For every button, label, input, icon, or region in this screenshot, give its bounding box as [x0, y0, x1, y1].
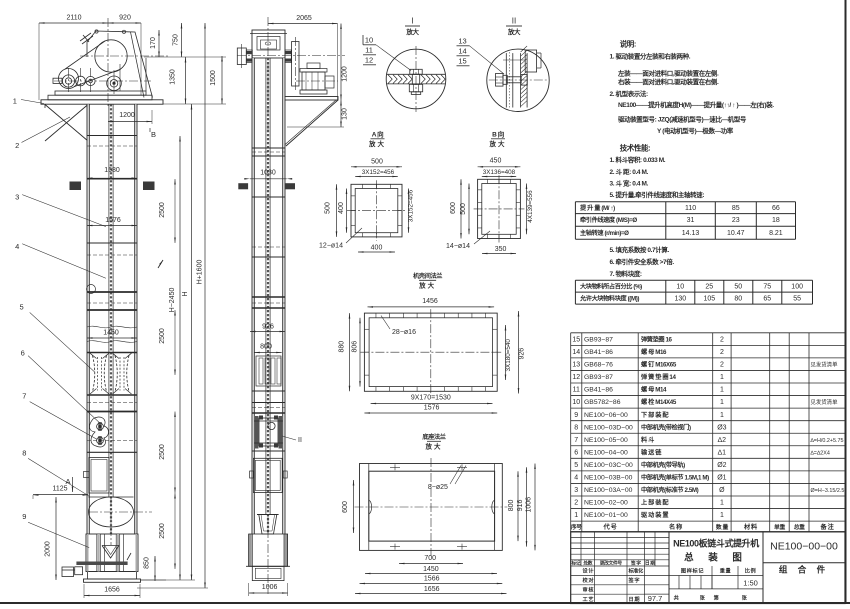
svg-text:4: 4: [574, 475, 578, 482]
svg-text:下 部 装 配: 下 部 装 配: [641, 411, 669, 419]
svg-text:55: 55: [793, 295, 801, 302]
svg-text:∆1: ∆1: [718, 449, 726, 456]
svg-text:螺 钉 M16X65: 螺 钉 M16X65: [641, 361, 677, 369]
svg-text:7: 7: [22, 392, 26, 401]
svg-text:螺 母 M14: 螺 母 M14: [641, 386, 667, 394]
svg-text:1450: 1450: [103, 330, 119, 337]
svg-text:1500: 1500: [210, 70, 217, 86]
svg-text:14: 14: [572, 349, 580, 356]
svg-text:5: 5: [20, 303, 24, 312]
svg-text:66: 66: [772, 205, 780, 212]
svg-text:中部机壳(带导轨): 中部机壳(带导轨): [641, 461, 685, 469]
svg-text:6: 6: [21, 349, 25, 358]
svg-text:审 核: 审 核: [583, 586, 595, 594]
svg-text:NE100板链斗式提升机: NE100板链斗式提升机: [673, 538, 759, 549]
svg-text:1576: 1576: [424, 404, 440, 411]
svg-text:800: 800: [260, 344, 272, 351]
svg-text:主轴转速 (r/min)=Ø: 主轴转速 (r/min)=Ø: [580, 229, 629, 237]
svg-text:驱 动 装 置: 驱 动 装 置: [641, 511, 668, 519]
svg-text:1:50: 1:50: [743, 579, 758, 588]
svg-text:1566: 1566: [424, 575, 440, 582]
svg-text:螺 栓 M14X45: 螺 栓 M14X45: [641, 398, 677, 406]
svg-text:1125: 1125: [52, 486, 67, 493]
svg-text:中部机壳(带检视门): 中部机壳(带检视门): [641, 423, 691, 431]
svg-text:说明:: 说明:: [620, 39, 636, 49]
svg-text:比 例: 比 例: [745, 567, 756, 575]
svg-text:中部机壳(单标节 1.5M,1 M): 中部机壳(单标节 1.5M,1 M): [641, 474, 709, 482]
svg-text:1030: 1030: [260, 170, 276, 177]
svg-text:1200: 1200: [342, 66, 349, 82]
svg-text:校 对: 校 对: [583, 576, 595, 584]
svg-text:H+1600: H+1600: [197, 260, 204, 285]
svg-text:放大: 放大: [507, 27, 521, 36]
svg-text:GB41−86: GB41−86: [584, 387, 613, 394]
svg-text:7. 物料块度:: 7. 物料块度:: [610, 269, 642, 278]
svg-text:NE100−01−00: NE100−01−00: [584, 512, 628, 519]
svg-text:更改文件号: 更改文件号: [600, 560, 623, 567]
svg-text:1: 1: [720, 500, 724, 507]
svg-text:926: 926: [262, 324, 274, 331]
svg-text:放大: 放大: [368, 139, 386, 148]
svg-text:10: 10: [365, 36, 373, 45]
svg-text:3: 3: [15, 193, 19, 202]
svg-text:放大: 放大: [489, 139, 507, 148]
svg-text:1: 1: [720, 387, 724, 394]
svg-text:11: 11: [365, 46, 373, 55]
svg-text:15: 15: [458, 57, 466, 66]
svg-text:12: 12: [572, 374, 580, 381]
svg-text:50: 50: [734, 283, 742, 290]
svg-text:GB5782−86: GB5782−86: [584, 399, 621, 406]
svg-text:上 部 装 配: 上 部 装 配: [641, 499, 669, 507]
svg-text:设 计: 设 计: [583, 567, 595, 575]
svg-text:序号: 序号: [571, 523, 582, 531]
svg-text:允许大块物料块度 ((M)): 允许大块物料块度 ((M)): [579, 294, 639, 302]
svg-text:14: 14: [458, 47, 466, 56]
svg-text:400: 400: [338, 202, 345, 214]
svg-text:400: 400: [371, 245, 383, 252]
svg-text:850: 850: [144, 557, 151, 569]
svg-text:2000: 2000: [45, 541, 52, 557]
svg-text:2500: 2500: [159, 523, 166, 539]
svg-text:8−ø25: 8−ø25: [428, 484, 448, 491]
svg-text:916: 916: [517, 499, 524, 511]
svg-text:100: 100: [791, 283, 803, 290]
svg-text:处数: 处数: [582, 560, 592, 567]
svg-text:代 号: 代 号: [603, 523, 617, 531]
svg-text:80: 80: [734, 295, 742, 302]
svg-text:签 字: 签 字: [630, 560, 641, 567]
svg-text:3X180=540: 3X180=540: [505, 339, 512, 372]
svg-text:NE100−04−00: NE100−04−00: [584, 449, 628, 456]
svg-text:NE100−03B−00: NE100−03B−00: [584, 475, 633, 482]
svg-text:1: 1: [13, 97, 17, 106]
svg-text:85: 85: [732, 205, 740, 212]
svg-text:2110: 2110: [66, 15, 81, 22]
svg-text:3X136=408: 3X136=408: [483, 169, 516, 176]
svg-text:4: 4: [15, 242, 19, 251]
svg-text:10.47: 10.47: [727, 230, 745, 237]
svg-text:12−ø14: 12−ø14: [319, 243, 343, 250]
svg-text:23: 23: [732, 217, 740, 224]
svg-text:牵引件线速度 (M/S)=Ø: 牵引件线速度 (M/S)=Ø: [580, 216, 637, 224]
svg-text:2: 2: [720, 349, 724, 356]
svg-text:NE100−06−00: NE100−06−00: [584, 412, 628, 419]
svg-text:NE100−00−00: NE100−00−00: [770, 541, 838, 553]
svg-text:输 送 链: 输 送 链: [641, 448, 662, 456]
svg-text:工 艺: 工 艺: [583, 595, 594, 603]
svg-text:备 注: 备 注: [820, 523, 835, 531]
svg-text:2500: 2500: [159, 328, 166, 344]
svg-text:1656: 1656: [424, 586, 440, 593]
svg-text:105: 105: [703, 295, 715, 302]
svg-text:130: 130: [674, 295, 686, 302]
svg-text:NE100−03D−00: NE100−03D−00: [584, 424, 633, 431]
svg-text:110: 110: [685, 205, 696, 212]
svg-text:组 合 件: 组 合 件: [779, 565, 829, 575]
svg-text:标准化: 标准化: [628, 567, 645, 575]
svg-text:2. 斗 距: 0.4 M.: 2. 斗 距: 0.4 M.: [610, 167, 649, 176]
svg-text:9: 9: [22, 512, 26, 521]
svg-text:弹 簧 垫 圈 14: 弹 簧 垫 圈 14: [641, 373, 676, 381]
svg-text:1006: 1006: [526, 497, 533, 513]
svg-text:弹簧垫圈 16: 弹簧垫圈 16: [641, 335, 673, 343]
svg-text:螺 母 M16: 螺 母 M16: [641, 348, 667, 356]
svg-text:见发货清单: 见发货清单: [811, 361, 839, 369]
svg-text:驱动装置型号: JZQ(减速机型号)—速比—机型号: 驱动装置型号: JZQ(减速机型号)—速比—机型号: [618, 115, 747, 124]
svg-text:2065: 2065: [296, 15, 312, 22]
svg-text:75: 75: [763, 283, 771, 290]
svg-text:底座法兰: 底座法兰: [422, 433, 445, 441]
svg-text:B: B: [151, 130, 156, 139]
svg-text:GB93−87: GB93−87: [584, 336, 613, 343]
svg-text:8.21: 8.21: [769, 230, 783, 237]
svg-text:料 斗: 料 斗: [641, 436, 654, 444]
svg-text:I: I: [411, 17, 413, 26]
svg-text:3. 斗 宽: 0.4 M.: 3. 斗 宽: 0.4 M.: [610, 178, 649, 187]
svg-text:25: 25: [705, 283, 713, 290]
svg-text:Ø3: Ø3: [717, 424, 726, 431]
svg-text:1: 1: [720, 374, 724, 381]
svg-text:1: 1: [720, 399, 724, 406]
svg-text:170: 170: [150, 37, 157, 49]
svg-text:880: 880: [339, 341, 346, 353]
svg-text:800: 800: [508, 499, 515, 511]
svg-text:1: 1: [720, 412, 724, 419]
svg-text:10: 10: [676, 283, 684, 290]
svg-text:1: 1: [720, 512, 724, 519]
svg-text:5. 提升量,牵引件线速度和主轴转速:: 5. 提升量,牵引件线速度和主轴转速:: [610, 190, 705, 199]
svg-text:920: 920: [119, 15, 131, 22]
svg-text:1200: 1200: [119, 112, 135, 119]
svg-text:NE100−03A−00: NE100−03A−00: [584, 487, 633, 494]
svg-text:提 升 量 (M/ ↑): 提 升 量 (M/ ↑): [580, 204, 615, 212]
svg-text:65: 65: [763, 295, 771, 302]
svg-text:技术性能:: 技术性能:: [620, 143, 651, 153]
svg-text:图 样 标 记: 图 样 标 记: [681, 567, 704, 575]
svg-text:130: 130: [342, 108, 349, 120]
svg-text:∆=H/0.2+5.75: ∆=H/0.2+5.75: [811, 438, 844, 444]
svg-text:H: H: [182, 291, 189, 296]
svg-text:10: 10: [572, 399, 580, 406]
svg-text:3: 3: [574, 487, 578, 494]
svg-text:2: 2: [720, 362, 724, 369]
svg-text:6: 6: [574, 449, 578, 456]
svg-text:1450: 1450: [423, 566, 439, 573]
svg-text:名 称: 名 称: [669, 523, 683, 531]
svg-text:2: 2: [15, 141, 19, 150]
svg-text:1006: 1006: [262, 584, 278, 591]
svg-text:1656: 1656: [104, 587, 120, 594]
svg-text:Ø2: Ø2: [717, 462, 726, 469]
svg-text:Y (电动机型号)—极数—功率: Y (电动机型号)—极数—功率: [657, 126, 734, 135]
svg-text:350: 350: [495, 246, 507, 253]
svg-text:GB41−86: GB41−86: [584, 349, 613, 356]
svg-text:GB68−76: GB68−76: [584, 362, 613, 369]
svg-text:NE100——提升机高度H(M)——提升量(↑↑/ ↑ )—: NE100——提升机高度H(M)——提升量(↑↑/ ↑ )——左(右)装.: [618, 100, 774, 109]
svg-text:单重: 单重: [774, 523, 785, 531]
svg-text:11: 11: [573, 387, 580, 394]
svg-text:II: II: [298, 437, 302, 444]
svg-text:750: 750: [173, 34, 180, 46]
svg-text:13: 13: [458, 37, 466, 46]
svg-text:机壳间法兰: 机壳间法兰: [413, 272, 442, 280]
svg-text:806: 806: [351, 341, 358, 353]
svg-text:数 量: 数 量: [716, 523, 729, 531]
svg-text:签 字: 签 字: [628, 576, 640, 584]
svg-text:15: 15: [572, 336, 580, 343]
svg-text:500: 500: [371, 159, 383, 166]
svg-text:A 向: A 向: [372, 130, 384, 139]
svg-text:左装——面对进料口,驱动装置在左侧.: 左装——面对进料口,驱动装置在左侧.: [617, 69, 719, 78]
svg-text:II: II: [512, 17, 516, 26]
svg-text:97.7: 97.7: [648, 594, 663, 603]
svg-text:Ø=H−3.15/2.5: Ø=H−3.15/2.5: [811, 488, 845, 494]
svg-text:14−ø14: 14−ø14: [446, 243, 470, 250]
svg-text:13: 13: [572, 362, 580, 369]
svg-text:2: 2: [574, 500, 578, 507]
svg-text:2. 机型表示法:: 2. 机型表示法:: [610, 89, 649, 98]
svg-text:日 期: 日 期: [645, 560, 655, 567]
svg-text:500: 500: [460, 203, 467, 215]
svg-text:Ø1: Ø1: [717, 475, 726, 482]
svg-text:NE100−05−00: NE100−05−00: [584, 437, 628, 444]
svg-text:总重: 总重: [794, 523, 805, 531]
svg-text:6. 牵引件安全系数 >7倍.: 6. 牵引件安全系数 >7倍.: [610, 257, 675, 266]
svg-text:12: 12: [365, 56, 373, 65]
svg-text:大块物料所占百分比 (%): 大块物料所占百分比 (%): [580, 282, 642, 290]
svg-text:H−2450: H−2450: [169, 288, 176, 313]
svg-text:∆2: ∆2: [718, 437, 726, 444]
svg-text:1. 驱动装置分左装和右装两种.: 1. 驱动装置分左装和右装两种.: [610, 52, 691, 61]
svg-text:标记: 标记: [570, 560, 580, 567]
svg-text:600: 600: [342, 501, 349, 513]
svg-text:7: 7: [574, 437, 578, 444]
svg-text:1: 1: [574, 512, 578, 519]
svg-text:9: 9: [574, 412, 578, 419]
svg-text:∆=∆2X4: ∆=∆2X4: [811, 450, 830, 456]
svg-text:450: 450: [490, 158, 502, 165]
svg-text:1576: 1576: [105, 217, 121, 224]
svg-text:926: 926: [519, 348, 526, 360]
svg-text:28−ø16: 28−ø16: [392, 329, 416, 336]
svg-text:日 期: 日 期: [629, 595, 640, 603]
svg-text:500: 500: [325, 202, 332, 214]
svg-text:1680: 1680: [104, 167, 120, 174]
svg-text:右装——面对进料口,驱动装置在右侧.: 右装——面对进料口,驱动装置在右侧.: [617, 77, 719, 86]
svg-text:NE100−03C−00: NE100−03C−00: [584, 462, 633, 469]
svg-text:2500: 2500: [159, 202, 166, 218]
svg-text:31: 31: [687, 217, 695, 224]
svg-text:总 装 图: 总 装 图: [684, 552, 748, 564]
svg-text:14.13: 14.13: [682, 230, 700, 237]
svg-text:中部机壳(标准节 2.5M): 中部机壳(标准节 2.5M): [641, 486, 699, 494]
svg-text:5. 填充系数按 0.7计算.: 5. 填充系数按 0.7计算.: [610, 245, 670, 254]
svg-text:8: 8: [22, 448, 26, 457]
svg-text:8: 8: [574, 424, 578, 431]
svg-text:放大: 放大: [425, 442, 443, 451]
svg-text:B 向: B 向: [492, 130, 505, 139]
svg-text:GB93−87: GB93−87: [584, 374, 613, 381]
svg-text:NE100−02−00: NE100−02−00: [584, 500, 628, 507]
svg-text:2500: 2500: [159, 444, 166, 460]
svg-text:700: 700: [424, 555, 436, 562]
svg-text:3X152=456: 3X152=456: [362, 169, 395, 176]
svg-text:放大: 放大: [418, 281, 436, 290]
svg-text:放大: 放大: [405, 27, 419, 36]
svg-text:5: 5: [574, 462, 578, 469]
svg-text:18: 18: [772, 217, 780, 224]
svg-text:材 料: 材 料: [743, 523, 758, 531]
svg-text:1350: 1350: [170, 69, 177, 85]
svg-text:Ø: Ø: [719, 487, 725, 494]
svg-text:1456: 1456: [422, 298, 438, 305]
svg-text:2: 2: [720, 336, 724, 343]
svg-text:9X170=1530: 9X170=1530: [411, 395, 451, 402]
svg-text:4X139=556: 4X139=556: [527, 190, 534, 223]
svg-text:600: 600: [450, 202, 457, 214]
svg-text:1. 料斗容积: 0.033 M.: 1. 料斗容积: 0.033 M.: [610, 155, 666, 164]
svg-text:重 量: 重 量: [720, 567, 732, 575]
svg-text:3X152=456: 3X152=456: [408, 189, 415, 222]
svg-text:见发货清单: 见发货清单: [811, 398, 839, 406]
